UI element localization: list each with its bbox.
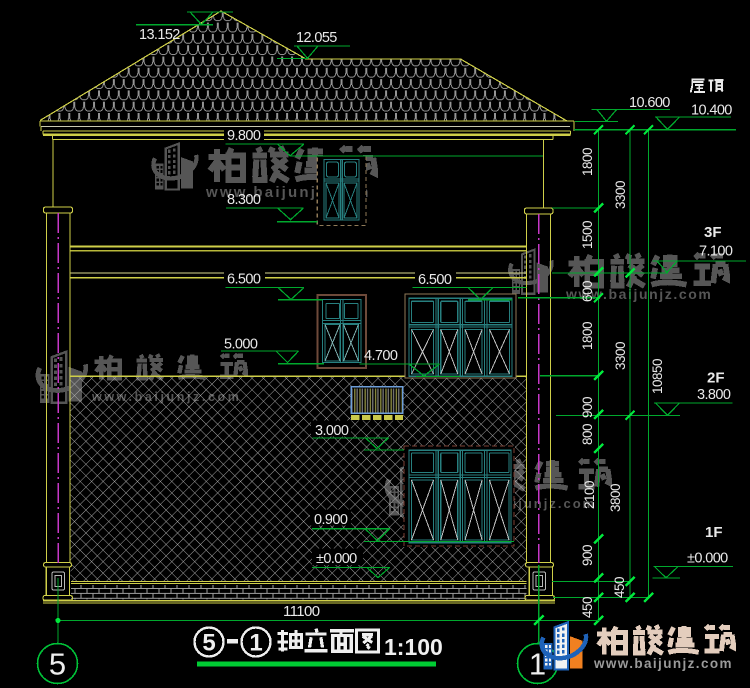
svg-text:10.600: 10.600	[629, 95, 670, 111]
svg-text:13.152: 13.152	[139, 27, 180, 43]
svg-text:±0.000: ±0.000	[316, 551, 357, 567]
svg-text:450: 450	[580, 597, 595, 618]
svg-text:1: 1	[249, 630, 262, 657]
svg-text:5: 5	[49, 647, 66, 682]
svg-text:1800: 1800	[580, 148, 595, 176]
svg-text:6.500: 6.500	[418, 272, 452, 288]
svg-text:3.800: 3.800	[697, 387, 731, 403]
svg-text:1800: 1800	[580, 322, 595, 350]
svg-text:11100: 11100	[283, 603, 320, 620]
svg-text:1500: 1500	[580, 221, 595, 249]
svg-text:12.055: 12.055	[296, 30, 337, 46]
svg-text:10850: 10850	[650, 359, 665, 394]
svg-text:10.400: 10.400	[691, 103, 732, 119]
svg-text:800: 800	[580, 424, 595, 445]
svg-text:8.300: 8.300	[227, 192, 261, 208]
svg-text:3300: 3300	[613, 181, 628, 209]
svg-text:450: 450	[612, 577, 627, 598]
svg-text:www.baijunjz.com: www.baijunjz.com	[593, 656, 733, 671]
svg-text:±0.000: ±0.000	[687, 551, 728, 567]
svg-text:1F: 1F	[705, 524, 723, 541]
svg-text:600: 600	[580, 281, 595, 302]
svg-text:4.700: 4.700	[364, 348, 398, 364]
svg-text:2100: 2100	[582, 481, 597, 509]
svg-text:6.500: 6.500	[227, 272, 261, 288]
svg-text:7.100: 7.100	[699, 244, 733, 260]
svg-text:2F: 2F	[707, 370, 725, 387]
svg-text:5: 5	[202, 630, 215, 657]
svg-text:3F: 3F	[704, 224, 722, 241]
svg-text:900: 900	[580, 397, 595, 418]
svg-text:3300: 3300	[613, 342, 628, 370]
svg-text:0.900: 0.900	[314, 512, 348, 528]
svg-text:9.800: 9.800	[227, 128, 261, 144]
svg-text:1:100: 1:100	[384, 634, 443, 660]
svg-text:5.000: 5.000	[224, 337, 258, 353]
svg-text:3800: 3800	[608, 484, 623, 512]
svg-text:3.000: 3.000	[315, 423, 349, 439]
svg-text:900: 900	[580, 545, 595, 566]
